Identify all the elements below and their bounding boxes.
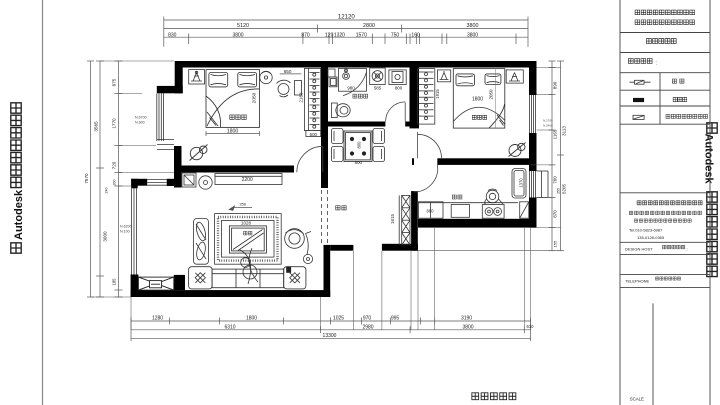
svg-text:12120: 12120 [338,13,356,20]
svg-text:135-0128-0365: 135-0128-0365 [637,235,665,240]
svg-text:2163: 2163 [299,92,304,103]
svg-text:1800: 1800 [246,316,257,322]
svg-text:1915: 1915 [435,89,440,99]
svg-text:1770: 1770 [112,118,117,129]
svg-text:N.6200: N.6200 [120,225,132,229]
svg-text:610: 610 [527,324,535,329]
svg-text:6310: 6310 [224,324,235,330]
svg-text:TELEPHONE: TELEPHONE [625,278,650,283]
svg-text:155: 155 [553,240,558,247]
svg-text:Autodesk: Autodesk [13,189,25,240]
svg-text:1370: 1370 [519,178,524,188]
svg-text:2200: 2200 [242,177,253,183]
svg-text:1800: 1800 [472,97,483,103]
svg-text:800: 800 [427,209,435,214]
svg-text:Tel:010-5823-6987: Tel:010-5823-6987 [629,228,663,233]
svg-text:1025: 1025 [333,316,344,322]
svg-text:3000: 3000 [103,231,108,242]
svg-text:720: 720 [112,161,117,169]
svg-text:585: 585 [374,85,382,90]
svg-text:120: 120 [325,32,334,38]
svg-text:SCALE: SCALE [630,396,644,401]
svg-text:650: 650 [284,69,292,74]
svg-text:600: 600 [310,132,318,137]
svg-text:N.100: N.100 [120,230,130,234]
svg-text:7570: 7570 [84,173,89,184]
svg-text:870: 870 [553,210,558,218]
svg-text:800: 800 [355,160,363,165]
svg-text:250: 250 [239,201,246,206]
svg-text:3800: 3800 [467,32,478,38]
svg-text:1165: 1165 [553,129,558,139]
svg-text:1800: 1800 [227,129,239,135]
svg-text:5205: 5205 [562,183,567,194]
svg-text:1320: 1320 [334,32,345,38]
svg-text:3190: 3190 [461,316,472,322]
svg-text:800: 800 [395,85,403,90]
svg-text:5120: 5120 [237,23,249,29]
svg-text:255: 255 [557,188,561,194]
svg-text:13300: 13300 [323,333,337,339]
svg-text:3800: 3800 [467,23,479,29]
svg-text:2050: 2050 [489,89,494,100]
svg-text:870: 870 [301,32,310,38]
svg-text:240: 240 [105,188,109,194]
svg-text:N.2400: N.2400 [543,124,553,128]
svg-text:260: 260 [113,180,117,186]
svg-text:800: 800 [357,141,362,149]
svg-text:N.6700: N.6700 [135,116,147,120]
svg-text:185: 185 [112,278,117,286]
svg-text:N.600: N.600 [135,121,145,125]
svg-text:875: 875 [112,78,117,86]
svg-text:2050: 2050 [252,92,258,103]
svg-text:1028: 1028 [241,221,252,226]
svg-text:995: 995 [391,316,400,322]
svg-text:1280: 1280 [152,316,163,322]
svg-text:3113: 3113 [562,126,567,136]
svg-text::: : [687,247,688,252]
svg-text:890: 890 [553,81,558,89]
svg-text:750: 750 [391,32,400,38]
svg-text:970: 970 [363,316,372,322]
svg-text:3800: 3800 [462,324,473,330]
svg-text:830: 830 [168,32,177,38]
svg-text:760: 760 [553,176,558,184]
svg-text:1570: 1570 [356,32,367,38]
svg-text:3565: 3565 [94,121,99,132]
svg-text:DESIGN HOST: DESIGN HOST [625,247,653,252]
svg-text:N.2700: N.2700 [543,119,553,123]
svg-text:160: 160 [411,32,420,38]
svg-text:Autodesk: Autodesk [702,134,714,185]
svg-text::: : [656,61,657,67]
svg-text:1615: 1615 [390,213,395,224]
svg-text:3800: 3800 [232,32,243,38]
svg-text:2800: 2800 [363,23,375,29]
svg-text:980: 980 [347,85,355,90]
svg-text:2980: 2980 [362,324,373,330]
